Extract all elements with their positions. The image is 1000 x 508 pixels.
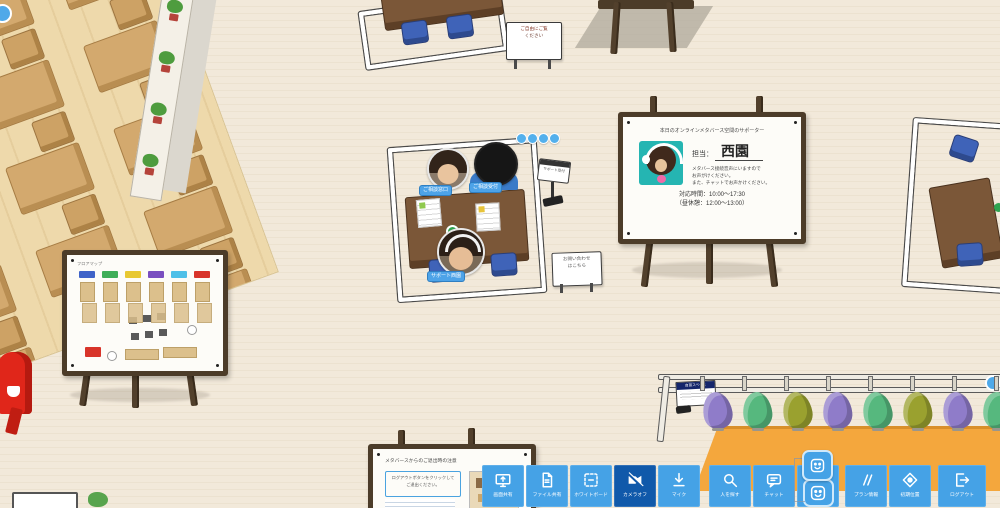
status-icon[interactable] xyxy=(538,133,549,144)
status-icon[interactable] xyxy=(516,133,527,144)
plant xyxy=(142,153,160,168)
chat-button[interactable]: チャット xyxy=(753,465,795,507)
plan-info-button[interactable]: プラン情報 xyxy=(845,465,887,507)
plant-pot xyxy=(153,116,163,124)
laptop xyxy=(676,405,692,414)
supporter-photo xyxy=(639,141,683,185)
home-position-icon xyxy=(900,470,920,490)
avatar-supporter[interactable] xyxy=(437,228,485,276)
toolbar-button-label: ログアウト xyxy=(950,493,974,499)
screen-share-button[interactable]: 画面共有 xyxy=(482,465,524,507)
railing-post xyxy=(742,376,747,391)
screen-share-icon xyxy=(493,470,513,490)
info-sign-top: ご自由にご覧 ください xyxy=(506,22,562,60)
plant xyxy=(166,0,184,14)
role-label: 担当： xyxy=(692,151,713,158)
pc-chair-base xyxy=(792,428,804,431)
supporter-board-title: 本日のオンラインメタバース空間のサポーター xyxy=(623,127,801,134)
mic-icon xyxy=(669,470,689,490)
logout-icon xyxy=(952,470,972,490)
map-table xyxy=(172,282,187,302)
plant xyxy=(158,50,176,65)
railing-post xyxy=(700,376,705,391)
whiteboard-icon xyxy=(581,470,601,490)
map-table xyxy=(126,282,141,302)
corner-sign: お問い合わせ はこちら xyxy=(551,251,602,287)
sign-text: はこちら xyxy=(553,262,601,270)
partial-sign xyxy=(12,492,78,508)
support-hours: 対応時間：10:00～17:30 xyxy=(623,191,801,200)
file-share-icon xyxy=(537,470,557,490)
supporter-note: お声がけください。 xyxy=(692,172,770,179)
pc-chair xyxy=(940,390,975,431)
sign-leg xyxy=(514,60,517,69)
pc-chair xyxy=(901,391,934,431)
toolbar-button-label: ホワイトボード xyxy=(574,493,608,499)
plant-pot xyxy=(144,167,154,175)
easel-shadow xyxy=(575,6,713,48)
pc-chair xyxy=(981,391,1000,431)
map-table xyxy=(174,303,189,323)
railing-post xyxy=(952,376,957,391)
exit-note: ご退出ください。 xyxy=(386,481,460,488)
pc-chair-base xyxy=(712,428,724,431)
railing-post xyxy=(784,376,789,391)
map-zone-label xyxy=(194,271,210,278)
map-zone-label xyxy=(171,271,187,278)
pc-chair-base xyxy=(832,428,844,431)
sign-leg xyxy=(548,60,551,69)
camera-off-icon xyxy=(625,470,645,490)
map-table xyxy=(80,282,95,302)
metaverse-room: ご自由にご覧 ください 本日のオンラインメタバース空間のサポーター 担当： xyxy=(0,0,1000,508)
map-table xyxy=(105,303,120,323)
pc-chair-base xyxy=(872,428,884,431)
reaction-popup-icon[interactable] xyxy=(802,450,833,481)
plant-pot xyxy=(169,13,179,21)
railing-post xyxy=(868,376,873,391)
pc-chair xyxy=(821,391,854,431)
railing-post xyxy=(994,376,999,391)
map-zone-label xyxy=(125,271,141,278)
plant-pot xyxy=(161,65,171,73)
paper xyxy=(475,202,500,231)
exit-note: ログアウトボタンをクリックして xyxy=(386,474,460,481)
mic-button[interactable]: マイク xyxy=(658,465,700,507)
pc-sign-text: 自習スペース xyxy=(676,381,714,390)
toolbar-button-label: マイク xyxy=(672,493,686,499)
status-icon[interactable] xyxy=(527,133,538,144)
whiteboard-button[interactable]: ホワイトボード xyxy=(570,465,612,507)
desk-sign-text: サポート受付 xyxy=(539,166,569,175)
green-dot xyxy=(994,203,1000,212)
avatar-supporter-label: サポート西園 xyxy=(428,272,464,281)
paper xyxy=(416,198,442,228)
avatar-member2-label: ご相談受付 xyxy=(470,183,501,192)
pc-chair-base xyxy=(752,428,764,431)
map-table xyxy=(149,282,164,302)
exit-board-title: メタバースからのご退出時の注意 xyxy=(385,457,531,464)
map-table xyxy=(128,303,143,323)
status-icon[interactable] xyxy=(549,133,560,144)
supporter-note: また、チャットでお声かけください。 xyxy=(692,179,770,186)
desk-sign: サポート受付 xyxy=(537,158,571,184)
toolbar-button-label: プラン情報 xyxy=(854,493,878,499)
reaction-icon xyxy=(803,479,834,507)
map-table xyxy=(103,282,118,302)
sign-text: ご自由にご覧 xyxy=(507,26,561,33)
sign-text: ください xyxy=(507,33,561,39)
find-people-button[interactable]: 人を探す xyxy=(709,465,751,507)
logout-button[interactable]: ログアウト xyxy=(938,465,986,507)
find-people-icon xyxy=(720,470,740,490)
railing-post xyxy=(826,376,831,391)
railing-corner-post xyxy=(657,376,671,442)
supporter-name: 西園 xyxy=(715,143,763,161)
map-table xyxy=(195,282,210,302)
toolbar-button-label: 画面共有 xyxy=(493,493,512,499)
lunch-break: （昼休憩：12:00～13:00） xyxy=(623,200,801,209)
chat-icon xyxy=(764,470,784,490)
floor-map-board: フロアマップ xyxy=(62,250,228,376)
pc-chair-base xyxy=(952,428,964,431)
pc-chair xyxy=(780,390,815,431)
plant xyxy=(150,101,168,116)
map-title: フロアマップ xyxy=(77,261,223,267)
railing-post xyxy=(910,376,915,391)
classroom-chair xyxy=(230,321,272,361)
chair xyxy=(957,243,982,266)
supporter-note: メタバース接続音声にいますので xyxy=(692,165,770,172)
pc-chair xyxy=(741,391,774,431)
pc-chair xyxy=(860,390,895,431)
map-zone-label xyxy=(79,271,95,278)
plant xyxy=(88,492,108,507)
map-table xyxy=(151,303,166,323)
chair xyxy=(447,14,474,38)
avatar-member1-label: ご相談窓口 xyxy=(420,186,451,195)
camera-off-button[interactable]: カメラオフ xyxy=(614,465,656,507)
supporter-board: 本日のオンラインメタバース空間のサポーター 担当： 西園 メタバース接続音声にい… xyxy=(618,112,806,244)
map-table xyxy=(197,303,212,323)
map-zone-label xyxy=(148,271,164,278)
chair xyxy=(402,20,429,44)
toolbar-button-label: チャット xyxy=(764,493,783,499)
pc-chair-base xyxy=(992,428,1000,431)
avatar-member2[interactable] xyxy=(474,142,518,186)
map-table xyxy=(82,303,97,323)
toolbar-button-label: 人を探す xyxy=(720,493,739,499)
red-mailbox xyxy=(0,352,32,414)
toolbar-button-label: 初期位置 xyxy=(900,493,919,499)
home-position-button[interactable]: 初期位置 xyxy=(889,465,931,507)
chair xyxy=(491,253,516,276)
sign-leg xyxy=(590,283,593,292)
toolbar-button-label: ファイル共有 xyxy=(533,493,562,499)
pc-chair-base xyxy=(912,428,924,431)
avatar-member1[interactable] xyxy=(427,148,469,190)
map-zone-label xyxy=(102,271,118,278)
sign-leg xyxy=(560,284,563,293)
file-share-button[interactable]: ファイル共有 xyxy=(526,465,568,507)
easel-leg xyxy=(706,238,713,284)
sign-stand-base xyxy=(542,195,563,207)
toolbar-button-label: カメラオフ xyxy=(623,493,647,499)
plan-info-icon xyxy=(856,470,876,490)
